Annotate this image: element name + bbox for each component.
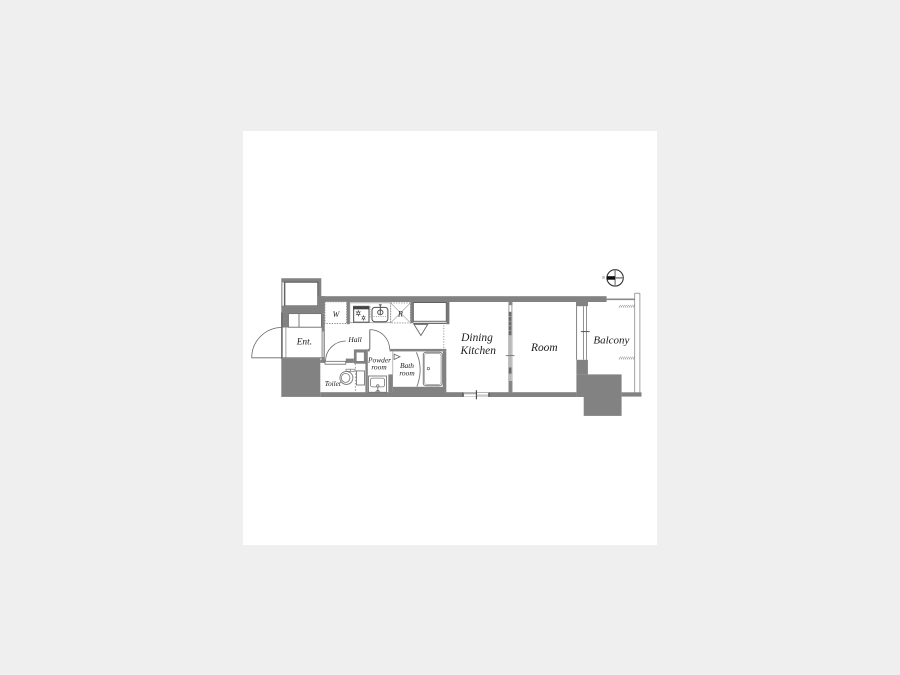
- svg-text:room: room: [399, 368, 415, 377]
- svg-text:room: room: [371, 363, 387, 372]
- svg-text:Toilet: Toilet: [325, 380, 342, 388]
- svg-text:Balcony: Balcony: [593, 335, 629, 347]
- svg-text:Hall: Hall: [347, 335, 361, 344]
- svg-text:N: N: [601, 275, 605, 280]
- svg-text:R: R: [397, 310, 403, 319]
- svg-text:Ent.: Ent.: [296, 338, 312, 348]
- svg-text:Dining: Dining: [460, 332, 493, 344]
- svg-text:Room: Room: [530, 342, 558, 354]
- svg-text:Kitchen: Kitchen: [459, 345, 496, 357]
